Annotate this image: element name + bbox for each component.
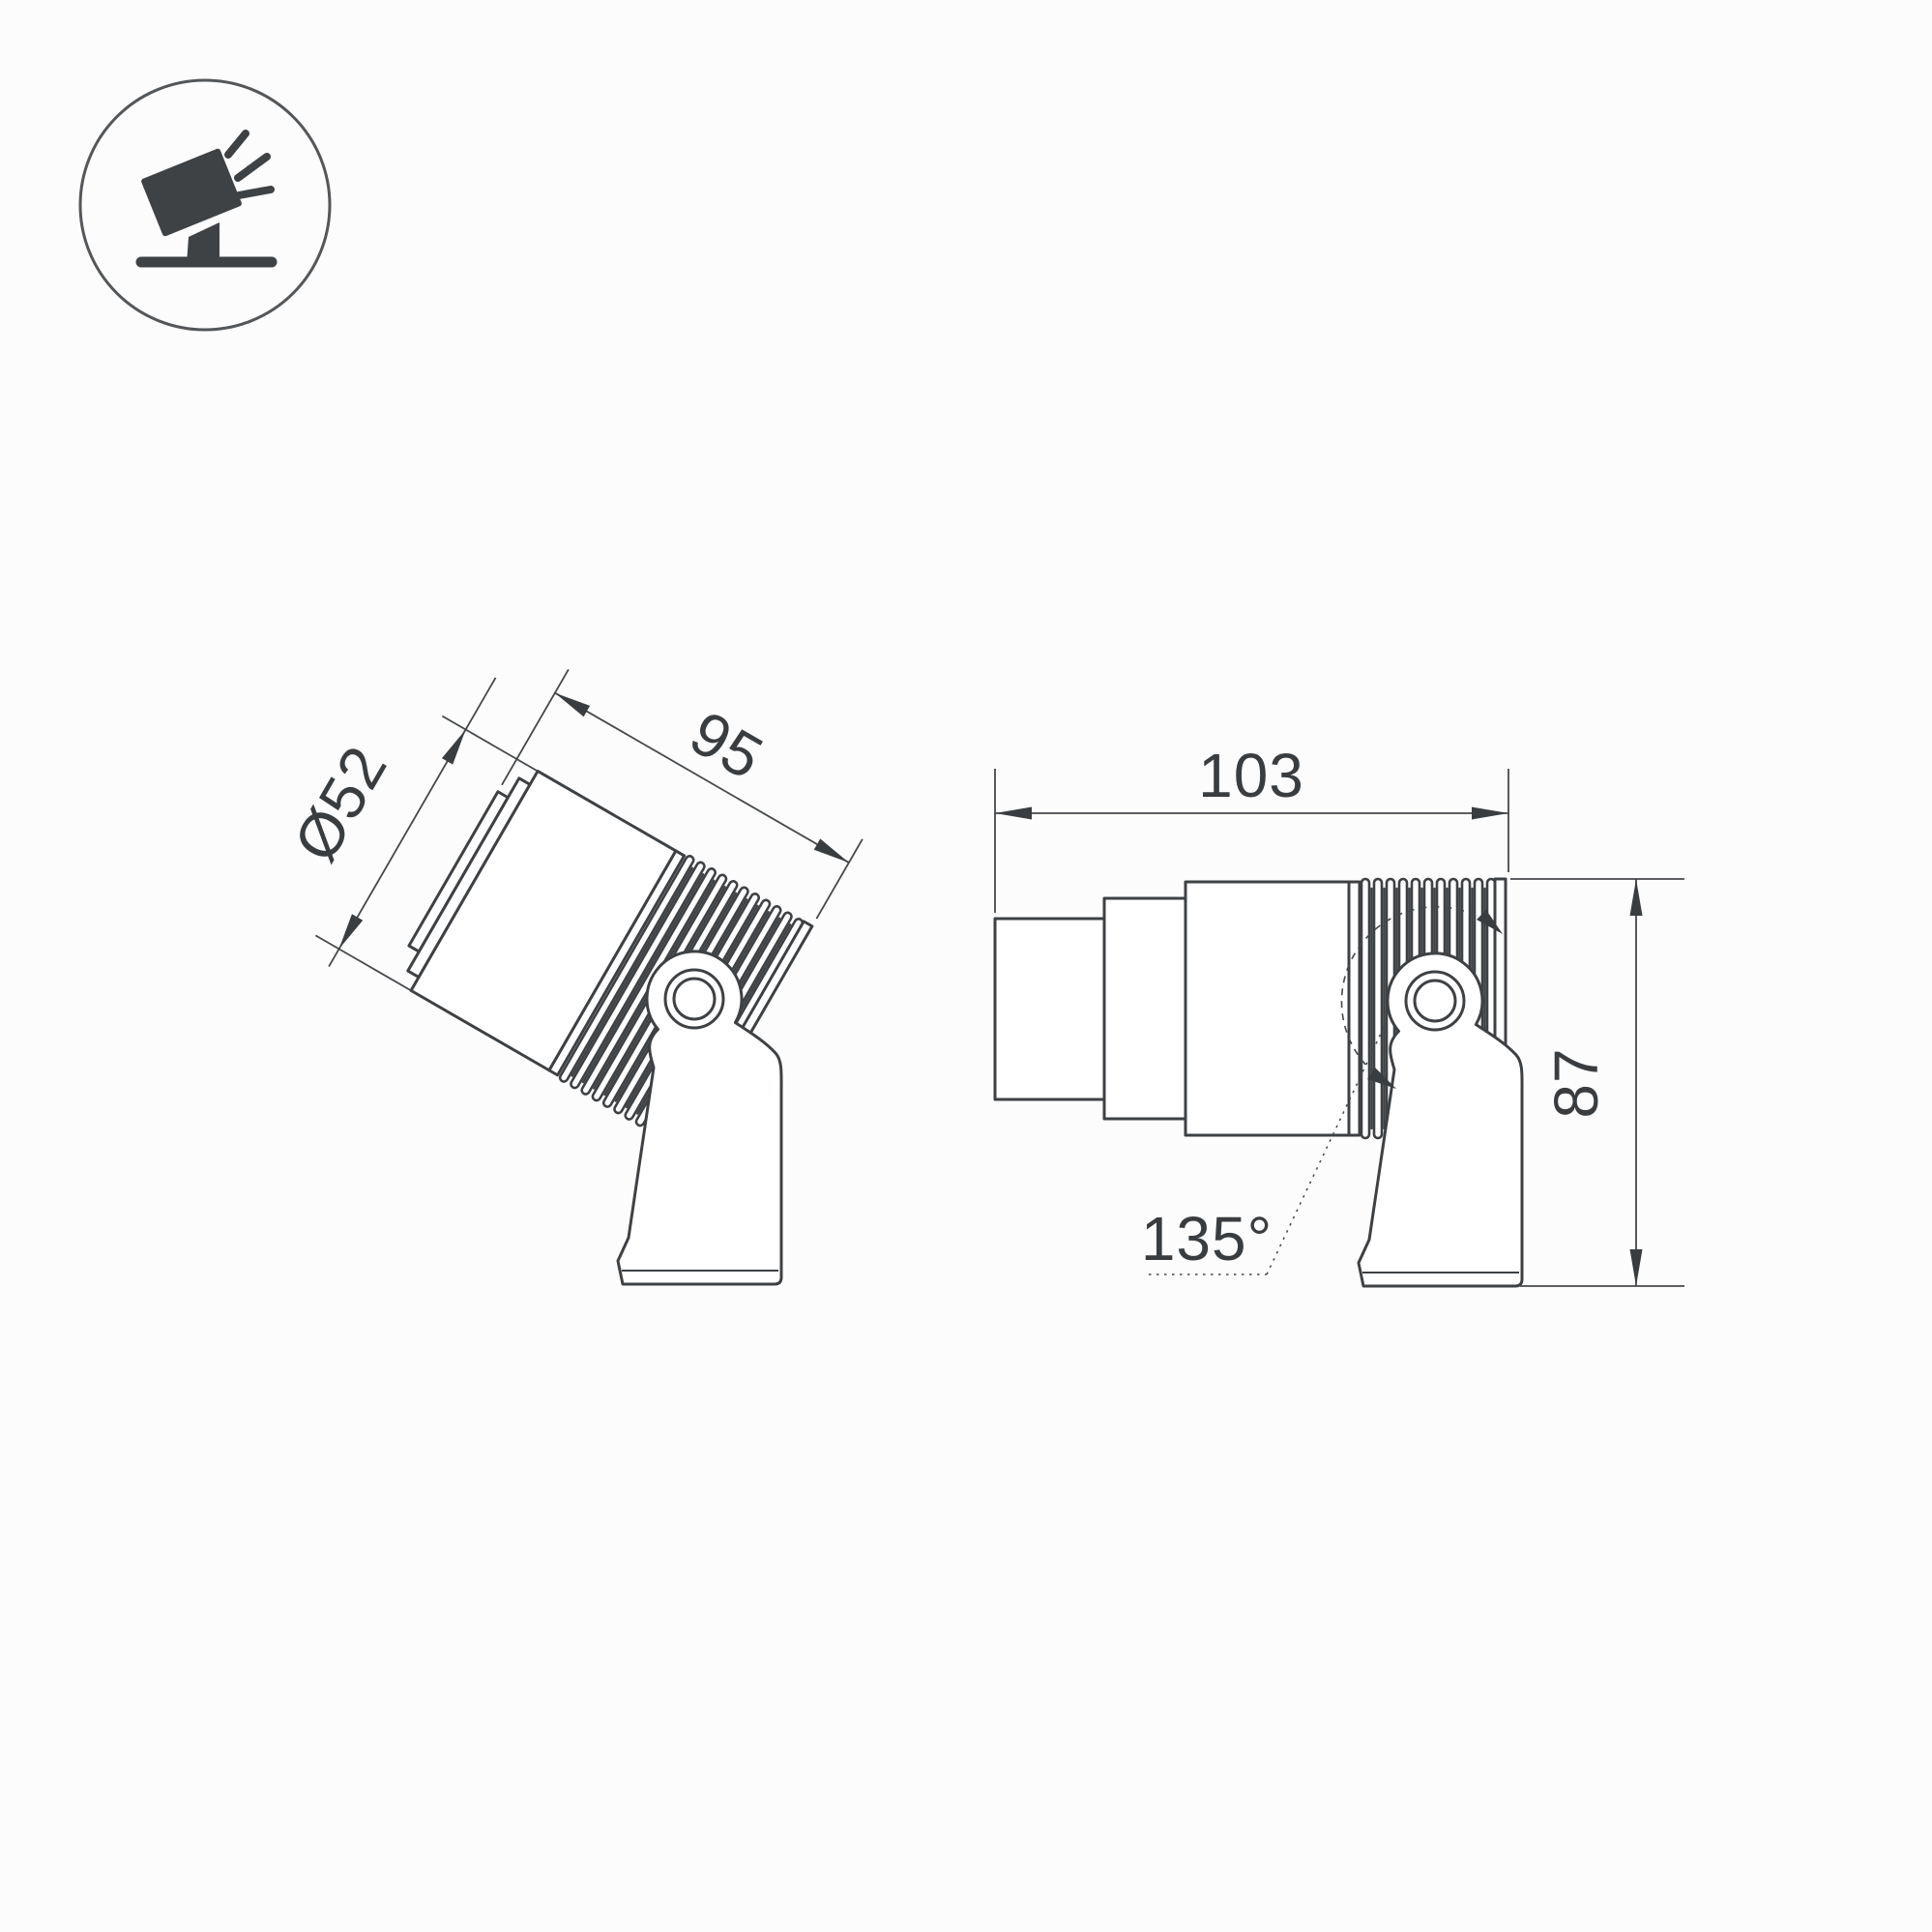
- tilted-spotlight-icon: [80, 80, 330, 330]
- diameter-dimension-label: Ø52: [280, 734, 400, 872]
- overall-height-dimension: 87: [1510, 879, 1684, 1286]
- tilt-range-label: 135°: [1141, 1204, 1273, 1273]
- lens-barrel-step: [1104, 898, 1186, 1119]
- drawing-canvas: Ø52 95: [0, 0, 1932, 1932]
- lens-barrel-front: [995, 919, 1104, 1099]
- overall-height-dimension-label: 87: [1541, 1047, 1611, 1118]
- icon-spotlight-head: [140, 148, 243, 237]
- overall-length-dimension-label: 103: [1198, 741, 1304, 810]
- lamp-main-housing: [1186, 882, 1349, 1135]
- body-length-dimension-label: 95: [679, 697, 775, 793]
- tilted-view-drawing: Ø52 95: [237, 545, 887, 1284]
- side-view-drawing: 103 87 135°: [995, 741, 1684, 1286]
- tilted-view-lamp-body: Ø52 95: [237, 545, 887, 1166]
- spotlight-dimension-drawing: Ø52 95: [0, 0, 1932, 1932]
- heatsink-front-plate: [1349, 882, 1360, 1135]
